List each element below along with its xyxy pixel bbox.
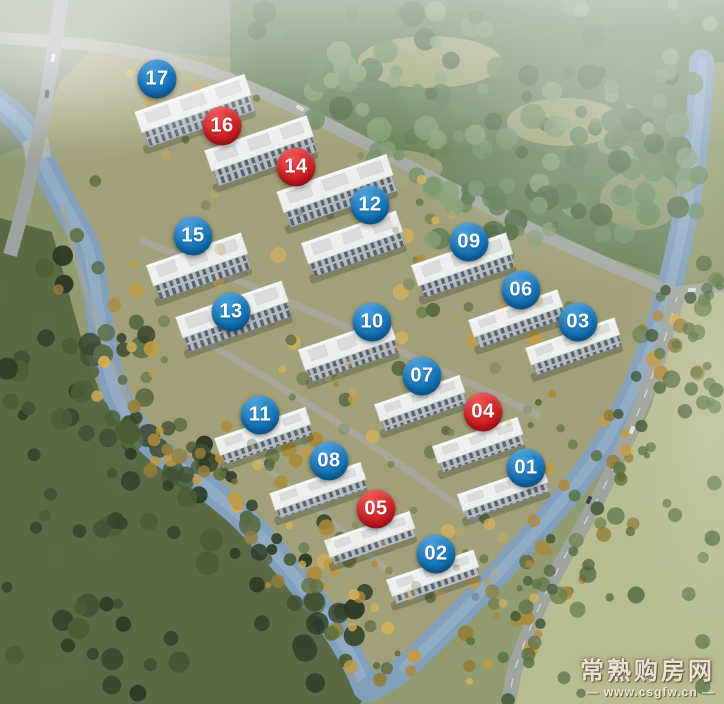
aerial-site-plan: 1716141215090613100307041108010502 常熟购房网… [0,0,724,704]
fog-overlay [0,0,724,704]
site-plan-rendering [0,0,724,704]
